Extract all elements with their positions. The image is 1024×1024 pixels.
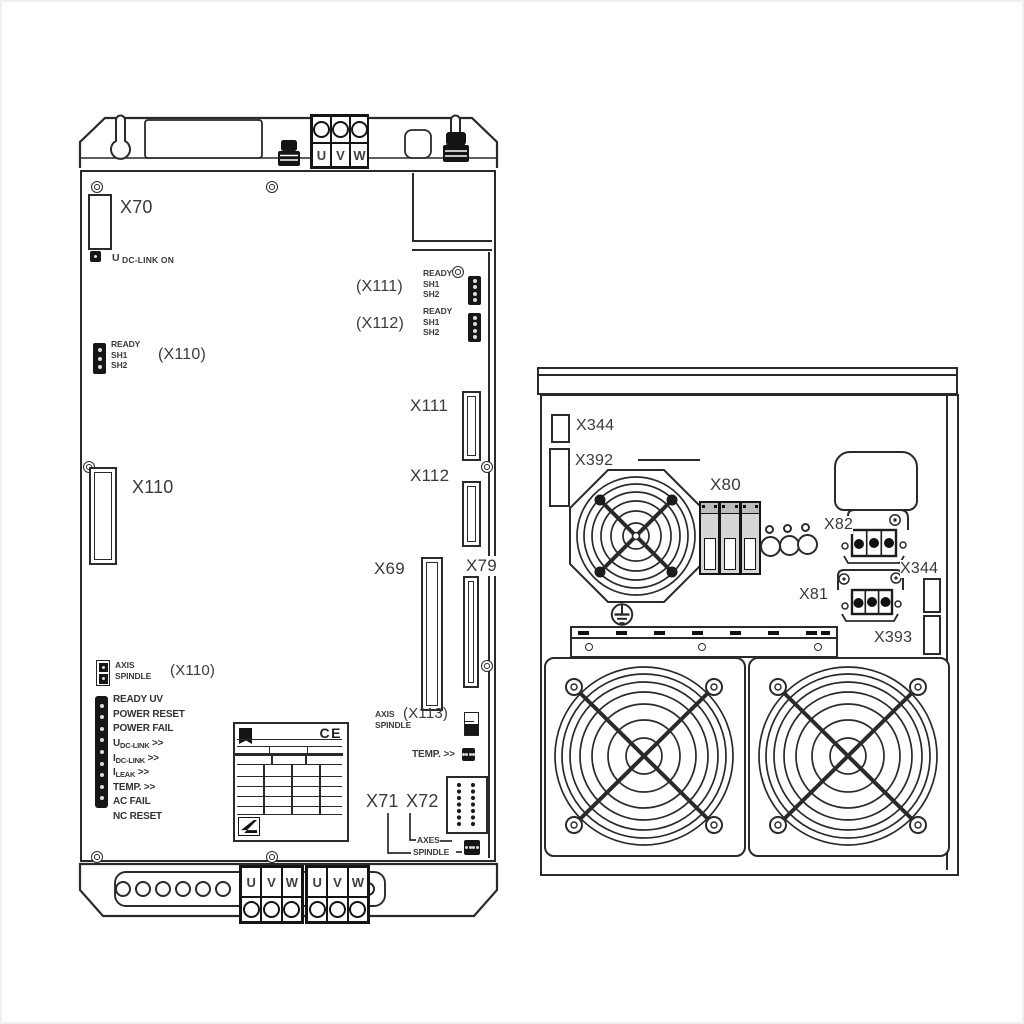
flange-hole-icon: [116, 882, 130, 896]
fan-guard-icon: [750, 659, 947, 854]
fuse-header: [701, 503, 718, 514]
terminal-hole: [241, 897, 261, 922]
x111-led-block-icon: [468, 276, 481, 305]
connector-x344-mid: [923, 578, 941, 613]
panel-hole-icon: [760, 536, 781, 557]
nameplate-line: [235, 753, 343, 756]
fan-guard-icon: [546, 659, 743, 854]
nameplate-line: [237, 746, 342, 747]
screw-icon: [481, 660, 493, 672]
x112-led-block-icon: [468, 313, 481, 342]
terminal-letter: W: [348, 867, 368, 897]
axes-spindle-led-icon: [464, 840, 480, 855]
rail-inner-line: [572, 637, 836, 639]
temp-label: TEMP. >>: [412, 750, 455, 761]
terminal-u-label: U: [312, 143, 331, 167]
panel-edge-line: [412, 240, 492, 242]
terminal-x82-label: X82: [824, 516, 853, 534]
dc-link-led-icon: [90, 251, 101, 262]
fan-panel-left: [544, 657, 746, 857]
terminal-hole-icon: [332, 121, 349, 138]
status-row: AC FAIL: [113, 796, 185, 811]
x110-led-block-icon: [93, 343, 106, 374]
nameplate-line: [237, 776, 342, 777]
status-row: UDC-LINK >>: [113, 738, 185, 753]
terminal-v-label: V: [331, 143, 350, 167]
terminal-letter: V: [261, 867, 281, 897]
dc-link-label: U DC-LINK ON: [112, 248, 174, 266]
terminal-rail: [570, 626, 838, 658]
diagram-canvas: U V W X70 U DC-LINK ON (X111) READY SH1 …: [0, 0, 1024, 1024]
left-top-flange: [78, 108, 500, 172]
status-label-list: READY UV POWER RESET POWER FAIL UDC-LINK…: [113, 694, 185, 826]
terminal-letter: W: [282, 867, 302, 897]
x111-led-text: READY SH1 SH2: [423, 268, 452, 300]
terminal-hole: [348, 897, 368, 922]
nameplate-line: [237, 806, 342, 807]
terminal-hole: [312, 116, 331, 143]
connector-x79: [463, 576, 479, 688]
status-row: POWER RESET: [113, 709, 185, 724]
nameplate-line: [269, 746, 270, 753]
panel-hole-icon: [783, 524, 792, 533]
x113-led-icon: [464, 712, 479, 736]
temp-led-icon: [462, 748, 475, 761]
terminal-x81-label: X81: [799, 586, 828, 604]
panel-edge-line: [488, 252, 490, 858]
connector-x344-mid-label: X344: [900, 560, 938, 578]
nameplate-line: [237, 764, 342, 765]
axes-label: AXES: [417, 835, 440, 846]
connector-x69: [421, 557, 443, 711]
panel-edge-line: [412, 249, 492, 251]
screw-icon: [91, 181, 103, 193]
terminal-hole: [282, 897, 302, 922]
connector-x344-top: [551, 414, 570, 443]
nameplate-line: [305, 755, 307, 765]
terminal-letter: U: [241, 867, 261, 897]
panel-hole-icon: [765, 525, 774, 534]
terminal-hole: [307, 897, 327, 922]
status-row: POWER FAIL: [113, 723, 185, 738]
terminal-letter: U: [307, 867, 327, 897]
nameplate-line: [237, 814, 342, 815]
terminal-hole: [261, 897, 281, 922]
terminal-block-bottom-axes: U V W: [239, 865, 304, 924]
nameplate-line: [263, 765, 265, 814]
axis-spindle-text: AXIS SPINDLE: [115, 660, 151, 681]
fuse-window: [704, 538, 716, 570]
status-row: IDC-LINK >>: [113, 753, 185, 768]
connector-x344-top-label: X344: [576, 417, 614, 435]
flange-step-block: [405, 130, 431, 158]
mounting-stud-icon: [281, 140, 297, 151]
status-led-strip-icon: [95, 696, 108, 808]
band-inner-line: [539, 374, 956, 376]
nameplate-line: [271, 755, 273, 765]
brand-logo: [238, 817, 260, 836]
right-device-top-band: [537, 367, 958, 395]
nameplate-line: [237, 739, 342, 740]
nameplate-line: [237, 786, 342, 787]
connector-x111: [462, 391, 481, 461]
screw-icon: [452, 266, 464, 278]
nameplate-line: [291, 765, 293, 814]
connector-x110-label: X110: [132, 477, 174, 498]
panel-hole-icon: [801, 523, 810, 532]
x112-led-text: READY SH1 SH2: [423, 306, 452, 338]
terminal-letter: V: [327, 867, 347, 897]
mounting-bolt-icon: [446, 132, 466, 145]
x113-ref-label: (X113): [403, 705, 448, 722]
terminal-block-top: U V W: [310, 114, 369, 169]
screw-icon: [266, 181, 278, 193]
terminal-block-bottom-spindle: U V W: [305, 865, 370, 924]
x110-led-text: READY SH1 SH2: [111, 339, 140, 371]
x111-ref-label: (X111): [356, 278, 403, 296]
x110-axis-ref-label: (X110): [170, 662, 215, 679]
nameplate-line: [307, 746, 308, 753]
small-fan-icon: [560, 465, 712, 607]
terminal-hole-icon: [313, 121, 330, 138]
terminal-hole: [331, 116, 350, 143]
connector-x70: [88, 194, 112, 250]
connector-x393: [923, 615, 941, 655]
connector-x393-label: X393: [874, 629, 912, 647]
rail-mark: [578, 631, 589, 635]
connector-x70-label: X70: [120, 197, 153, 218]
nameplate-line: [237, 796, 342, 797]
terminal-hole: [350, 116, 369, 143]
x112-ref-label: (X112): [356, 315, 404, 333]
status-row: TEMP. >>: [113, 782, 185, 797]
panel-edge-line: [412, 173, 414, 241]
status-row: READY UV: [113, 694, 185, 709]
nameplate: CE: [233, 722, 349, 842]
connector-x110: [89, 467, 117, 565]
x392-leader-line: [638, 459, 700, 461]
choke-component: [834, 451, 918, 511]
terminal-hole: [327, 897, 347, 922]
connector-x112-label: X112: [410, 466, 449, 486]
connector-x111-label: X111: [410, 396, 448, 416]
flange-raised-block: [145, 120, 262, 158]
connector-x112: [462, 481, 481, 547]
fan-panel-right: [748, 657, 950, 857]
fuse-block-x80-label: X80: [710, 475, 741, 495]
rail-hole-icon: [585, 643, 593, 651]
connector-x79-label: X79: [466, 556, 497, 576]
manufacturer-logo: [239, 728, 252, 744]
x110-ref-label: (X110): [158, 346, 206, 364]
connector-x69-label: X69: [374, 559, 405, 579]
earth-ground-icon: [610, 601, 634, 627]
fuse-block-x80: [699, 501, 761, 575]
nameplate-line: [319, 765, 321, 814]
terminal-hole-icon: [351, 121, 368, 138]
screw-icon: [481, 461, 493, 473]
panel-hole-icon: [797, 534, 818, 555]
axis-spindle-led-icon: [96, 660, 110, 686]
terminal-w-label: W: [350, 143, 369, 167]
status-row: NC RESET: [113, 811, 185, 826]
status-row: ILEAK >>: [113, 767, 185, 782]
